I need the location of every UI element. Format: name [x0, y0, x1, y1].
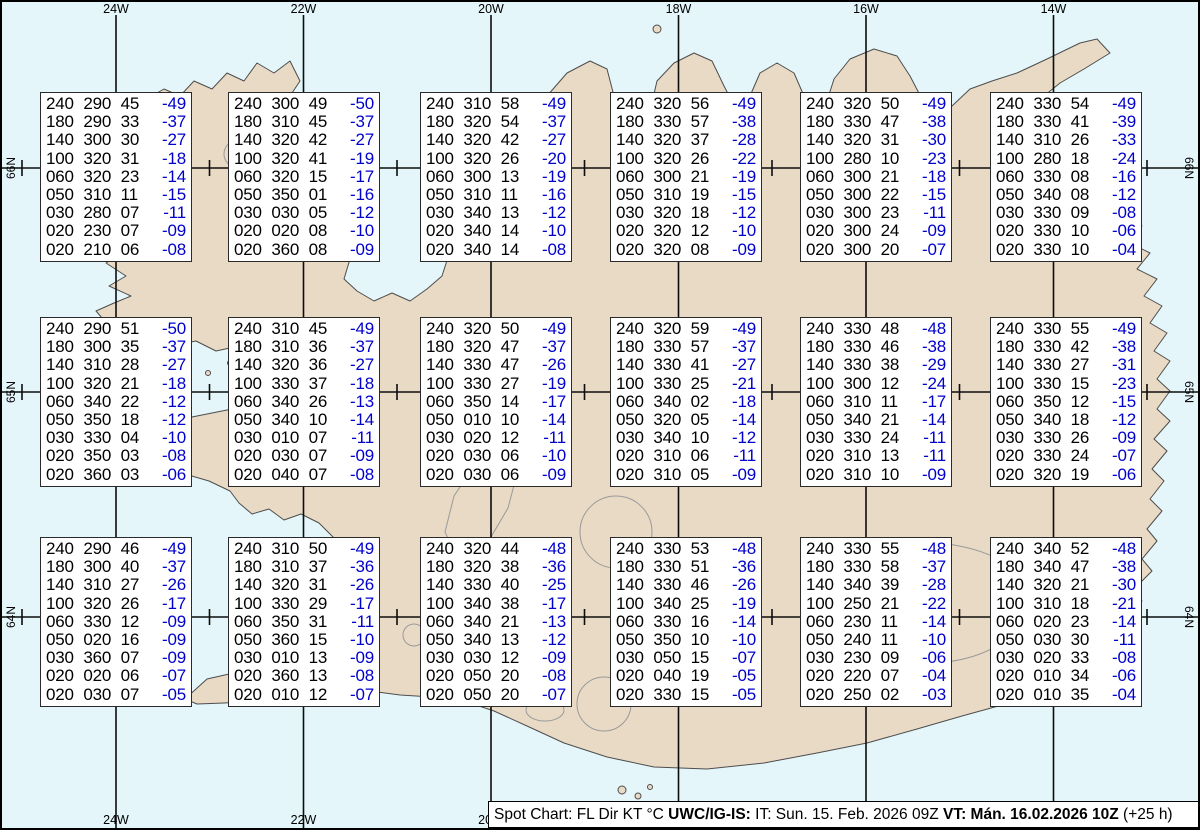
dir-value: 240 — [843, 631, 877, 649]
meridian-label-top: 14W — [1041, 3, 1067, 16]
dir-value: 300 — [83, 131, 117, 149]
legend-forecast-offset: (+25 h) — [1119, 806, 1173, 824]
dir-value: 320 — [271, 576, 305, 594]
kt-value: 20 — [501, 667, 527, 685]
dir-value: 340 — [463, 204, 497, 222]
fl-value: 060 — [46, 613, 80, 631]
kt-value: 11 — [501, 186, 527, 204]
fl-value: 020 — [426, 447, 460, 465]
temp-value: -49 — [338, 540, 374, 558]
fl-value: 060 — [616, 613, 650, 631]
kt-value: 27 — [121, 576, 147, 594]
spot-row: 24031045-49 — [234, 320, 374, 338]
dir-value: 320 — [843, 95, 877, 113]
fl-value: 180 — [996, 113, 1030, 131]
spot-row: 03033009-08 — [996, 204, 1136, 222]
spot-row: 05036015-10 — [234, 631, 374, 649]
kt-value: 26 — [121, 595, 147, 613]
spot-row: 18031037-36 — [234, 558, 374, 576]
spot-row: 24033048-48 — [806, 320, 946, 338]
fl-value: 060 — [996, 393, 1030, 411]
temp-value: -09 — [150, 631, 186, 649]
fl-value: 030 — [426, 204, 460, 222]
temp-value: -03 — [910, 686, 946, 704]
spot-row: 06034021-13 — [426, 613, 566, 631]
spot-row: 02021006-08 — [46, 241, 186, 259]
fl-value: 100 — [996, 375, 1030, 393]
spot-box-r1c1: 24029045-4918029033-3714030030-271003203… — [40, 92, 192, 262]
spot-row: 02003006-10 — [426, 447, 566, 465]
spot-row: 06034026-13 — [234, 393, 374, 411]
spot-row: 02003006-09 — [426, 466, 566, 484]
fl-value: 050 — [426, 411, 460, 429]
fl-value: 060 — [616, 393, 650, 411]
temp-value: -12 — [1100, 411, 1136, 429]
dir-value: 310 — [271, 558, 305, 576]
dir-value: 340 — [653, 429, 687, 447]
legend-bar: Spot Chart: FL Dir KT °C UWC/IG-IS: IT: … — [488, 801, 1198, 828]
fl-value: 060 — [46, 393, 80, 411]
fl-value: 020 — [806, 241, 840, 259]
fl-value: 030 — [426, 649, 460, 667]
kt-value: 26 — [1071, 429, 1097, 447]
kt-value: 24 — [1071, 447, 1097, 465]
temp-value: -12 — [530, 204, 566, 222]
dir-value: 340 — [1033, 540, 1067, 558]
fl-value: 030 — [426, 429, 460, 447]
spot-row: 03028007-11 — [46, 204, 186, 222]
dir-value: 320 — [83, 375, 117, 393]
kt-value: 47 — [501, 338, 527, 356]
fl-value: 020 — [806, 447, 840, 465]
temp-value: -10 — [530, 447, 566, 465]
spot-row: 18032047-37 — [426, 338, 566, 356]
fl-value: 180 — [996, 558, 1030, 576]
spot-row: 18033047-38 — [806, 113, 946, 131]
spot-row: 05034010-14 — [234, 411, 374, 429]
dir-value: 320 — [271, 168, 305, 186]
kt-value: 18 — [1071, 150, 1097, 168]
temp-value: -04 — [1100, 686, 1136, 704]
dir-value: 340 — [463, 613, 497, 631]
spot-row: 02002006-07 — [46, 667, 186, 685]
spot-row: 18029033-37 — [46, 113, 186, 131]
fl-value: 140 — [46, 131, 80, 149]
dir-value: 360 — [271, 241, 305, 259]
temp-value: -49 — [720, 320, 756, 338]
kt-value: 12 — [691, 222, 717, 240]
dir-value: 340 — [653, 595, 687, 613]
temp-value: -25 — [530, 576, 566, 594]
spot-row: 10032026-17 — [46, 595, 186, 613]
temp-value: -07 — [910, 241, 946, 259]
fl-value: 140 — [234, 356, 268, 374]
temp-value: -12 — [150, 411, 186, 429]
fl-value: 180 — [616, 338, 650, 356]
temp-value: -49 — [1100, 95, 1136, 113]
dir-value: 360 — [271, 667, 305, 685]
fl-value: 240 — [234, 540, 268, 558]
kt-value: 51 — [691, 558, 717, 576]
spot-row: 24034052-48 — [996, 540, 1136, 558]
fl-value: 050 — [234, 186, 268, 204]
kt-value: 24 — [881, 429, 907, 447]
kt-value: 38 — [501, 595, 527, 613]
dir-value: 330 — [83, 429, 117, 447]
fl-value: 140 — [46, 576, 80, 594]
temp-value: -16 — [1100, 168, 1136, 186]
fl-value: 020 — [616, 466, 650, 484]
dir-value: 320 — [653, 320, 687, 338]
fl-value: 030 — [46, 429, 80, 447]
kt-value: 07 — [121, 204, 147, 222]
kt-value: 09 — [881, 649, 907, 667]
temp-value: -09 — [150, 613, 186, 631]
fl-value: 020 — [46, 222, 80, 240]
spot-row: 02030024-09 — [806, 222, 946, 240]
temp-value: -49 — [530, 320, 566, 338]
fl-value: 140 — [46, 356, 80, 374]
fl-value: 240 — [234, 320, 268, 338]
dir-value: 290 — [83, 320, 117, 338]
temp-value: -15 — [1100, 393, 1136, 411]
fl-value: 240 — [996, 95, 1030, 113]
fl-value: 050 — [46, 411, 80, 429]
spot-row: 06032015-17 — [234, 168, 374, 186]
dir-value: 330 — [463, 356, 497, 374]
kt-value: 04 — [121, 429, 147, 447]
temp-value: -15 — [150, 186, 186, 204]
dir-value: 340 — [463, 631, 497, 649]
dir-value: 310 — [1033, 131, 1067, 149]
spot-box-r3c2: 24031050-4918031037-3614032031-261003302… — [228, 537, 380, 707]
temp-value: -27 — [150, 356, 186, 374]
spot-row: 06030013-19 — [426, 168, 566, 186]
dir-value: 030 — [463, 447, 497, 465]
temp-value: -49 — [150, 540, 186, 558]
legend-valid-time: VT: Mán. 16.02.2026 10Z — [943, 806, 1119, 824]
dir-value: 310 — [843, 447, 877, 465]
meridian-label-top: 24W — [103, 3, 129, 16]
temp-value: -19 — [720, 168, 756, 186]
spot-row: 06033012-09 — [46, 613, 186, 631]
fl-value: 100 — [616, 375, 650, 393]
dir-value: 330 — [653, 375, 687, 393]
dir-value: 230 — [843, 649, 877, 667]
temp-value: -06 — [1100, 466, 1136, 484]
dir-value: 340 — [271, 411, 305, 429]
temp-value: -37 — [150, 558, 186, 576]
dir-value: 310 — [653, 466, 687, 484]
dir-value: 010 — [463, 411, 497, 429]
fl-value: 030 — [806, 204, 840, 222]
fl-value: 030 — [806, 649, 840, 667]
kt-value: 48 — [881, 320, 907, 338]
fl-value: 180 — [806, 558, 840, 576]
temp-value: -31 — [1100, 356, 1136, 374]
kt-value: 21 — [691, 168, 717, 186]
kt-value: 47 — [501, 356, 527, 374]
dir-value: 330 — [1033, 222, 1067, 240]
spot-row: 14033027-31 — [996, 356, 1136, 374]
kt-value: 50 — [881, 95, 907, 113]
spot-row: 14031026-33 — [996, 131, 1136, 149]
temp-value: -10 — [910, 631, 946, 649]
spot-row: 03036007-09 — [46, 649, 186, 667]
dir-value: 330 — [843, 429, 877, 447]
spot-row: 02032012-10 — [616, 222, 756, 240]
fl-value: 050 — [46, 186, 80, 204]
dir-value: 330 — [463, 375, 497, 393]
fl-value: 060 — [996, 613, 1030, 631]
temp-value: -21 — [1100, 595, 1136, 613]
spot-row: 18033041-39 — [996, 113, 1136, 131]
kt-value: 23 — [121, 168, 147, 186]
dir-value: 310 — [653, 447, 687, 465]
temp-value: -36 — [338, 558, 374, 576]
spot-row: 14030030-27 — [46, 131, 186, 149]
spot-row: 14032031-30 — [806, 131, 946, 149]
dir-value: 320 — [653, 95, 687, 113]
fl-value: 050 — [996, 186, 1030, 204]
temp-value: -17 — [338, 168, 374, 186]
dir-value: 320 — [653, 204, 687, 222]
dir-value: 020 — [1033, 649, 1067, 667]
spot-row: 05003030-11 — [996, 631, 1136, 649]
kt-value: 27 — [1071, 356, 1097, 374]
dir-value: 320 — [653, 241, 687, 259]
dir-value: 220 — [843, 667, 877, 685]
kt-value: 20 — [881, 241, 907, 259]
fl-value: 180 — [234, 558, 268, 576]
kt-value: 41 — [1071, 113, 1097, 131]
dir-value: 030 — [463, 466, 497, 484]
temp-value: -08 — [1100, 649, 1136, 667]
kt-value: 18 — [691, 204, 717, 222]
dir-value: 310 — [271, 320, 305, 338]
fl-value: 140 — [996, 131, 1030, 149]
fl-value: 020 — [46, 241, 80, 259]
fl-value: 180 — [46, 558, 80, 576]
dir-value: 330 — [843, 558, 877, 576]
fl-value: 140 — [806, 576, 840, 594]
kt-value: 21 — [1071, 576, 1097, 594]
kt-value: 39 — [881, 576, 907, 594]
dir-value: 050 — [463, 686, 497, 704]
temp-value: -10 — [338, 631, 374, 649]
dir-value: 330 — [1033, 356, 1067, 374]
kt-value: 18 — [121, 411, 147, 429]
spot-row: 02034014-08 — [426, 241, 566, 259]
fl-value: 060 — [234, 168, 268, 186]
spot-row: 05030022-15 — [806, 186, 946, 204]
kt-value: 38 — [501, 558, 527, 576]
spot-row: 10030012-24 — [806, 375, 946, 393]
kt-value: 08 — [1071, 186, 1097, 204]
dir-value: 310 — [271, 113, 305, 131]
temp-value: -28 — [910, 576, 946, 594]
dir-value: 300 — [843, 204, 877, 222]
spot-box-r3c4: 24033053-4818033051-3614033046-261003402… — [610, 537, 762, 707]
temp-value: -10 — [720, 222, 756, 240]
kt-value: 12 — [501, 649, 527, 667]
dir-value: 360 — [83, 649, 117, 667]
dir-value: 330 — [1033, 447, 1067, 465]
fl-value: 020 — [426, 241, 460, 259]
spot-box-r1c3: 24031058-4918032054-3714032042-271003202… — [420, 92, 572, 262]
dir-value: 320 — [653, 150, 687, 168]
dir-value: 330 — [653, 113, 687, 131]
dir-value: 330 — [1033, 338, 1067, 356]
temp-value: -06 — [150, 466, 186, 484]
dir-value: 330 — [653, 558, 687, 576]
kt-value: 42 — [309, 131, 335, 149]
fl-value: 180 — [996, 338, 1030, 356]
dir-value: 040 — [271, 466, 305, 484]
temp-value: -11 — [150, 204, 186, 222]
spot-row: 10031018-21 — [996, 595, 1136, 613]
spot-row: 02004007-08 — [234, 466, 374, 484]
kt-value: 08 — [309, 222, 335, 240]
temp-value: -17 — [910, 393, 946, 411]
kt-value: 12 — [501, 429, 527, 447]
spot-row: 03030023-11 — [806, 204, 946, 222]
dir-value: 330 — [463, 576, 497, 594]
temp-value: -26 — [530, 356, 566, 374]
dir-value: 300 — [843, 222, 877, 240]
kt-value: 37 — [309, 375, 335, 393]
temp-value: -11 — [530, 429, 566, 447]
fl-value: 020 — [996, 667, 1030, 685]
dir-value: 340 — [843, 576, 877, 594]
spot-row: 02032019-06 — [996, 466, 1136, 484]
spot-row: 03033004-10 — [46, 429, 186, 447]
temp-value: -37 — [530, 113, 566, 131]
kt-value: 28 — [121, 356, 147, 374]
parallel-label-left: 66N — [4, 153, 18, 183]
fl-value: 020 — [806, 466, 840, 484]
dir-value: 010 — [271, 429, 305, 447]
dir-value: 310 — [271, 540, 305, 558]
kt-value: 12 — [1071, 393, 1097, 411]
dir-value: 350 — [271, 186, 305, 204]
spot-row: 03001013-09 — [234, 649, 374, 667]
spot-row: 06034022-12 — [46, 393, 186, 411]
temp-value: -27 — [338, 131, 374, 149]
temp-value: -06 — [1100, 667, 1136, 685]
fl-value: 100 — [234, 375, 268, 393]
dir-value: 030 — [463, 649, 497, 667]
fl-value: 100 — [46, 595, 80, 613]
kt-value: 13 — [881, 447, 907, 465]
dir-value: 340 — [1033, 558, 1067, 576]
kt-value: 14 — [501, 222, 527, 240]
temp-value: -38 — [910, 113, 946, 131]
dir-value: 330 — [1033, 375, 1067, 393]
spot-row: 10032026-20 — [426, 150, 566, 168]
kt-value: 08 — [691, 241, 717, 259]
spot-box-r3c5: 24033055-4818033058-3714034039-281002502… — [800, 537, 952, 707]
temp-value: -14 — [150, 168, 186, 186]
temp-value: -15 — [720, 186, 756, 204]
spot-row: 18031036-37 — [234, 338, 374, 356]
fl-value: 100 — [806, 595, 840, 613]
fl-value: 240 — [806, 540, 840, 558]
kt-value: 33 — [121, 113, 147, 131]
spot-row: 18030035-37 — [46, 338, 186, 356]
spot-row: 05034013-12 — [426, 631, 566, 649]
temp-value: -24 — [910, 375, 946, 393]
dir-value: 320 — [653, 131, 687, 149]
spot-row: 18031045-37 — [234, 113, 374, 131]
dir-value: 280 — [843, 150, 877, 168]
kt-value: 07 — [881, 667, 907, 685]
temp-value: -39 — [1100, 113, 1136, 131]
kt-value: 19 — [691, 667, 717, 685]
kt-value: 54 — [1071, 95, 1097, 113]
dir-value: 300 — [653, 168, 687, 186]
spot-row: 10033029-17 — [234, 595, 374, 613]
dir-value: 350 — [271, 613, 305, 631]
kt-value: 21 — [881, 411, 907, 429]
fl-value: 100 — [996, 150, 1030, 168]
fl-value: 060 — [806, 613, 840, 631]
kt-value: 29 — [309, 595, 335, 613]
spot-box-r2c1: 24029051-5018030035-3714031028-271003202… — [40, 317, 192, 487]
temp-value: -37 — [720, 338, 756, 356]
fl-value: 050 — [616, 411, 650, 429]
spot-row: 02001012-07 — [234, 686, 374, 704]
dir-value: 330 — [653, 576, 687, 594]
parallel-label-right: 64N — [1182, 602, 1196, 632]
dir-value: 330 — [843, 320, 877, 338]
spot-row: 24031050-49 — [234, 540, 374, 558]
fl-value: 100 — [996, 595, 1030, 613]
spot-row: 05032005-14 — [616, 411, 756, 429]
spot-row: 03002033-08 — [996, 649, 1136, 667]
spot-row: 05035010-10 — [616, 631, 756, 649]
fl-value: 180 — [426, 338, 460, 356]
kt-value: 25 — [691, 595, 717, 613]
spot-row: 14032021-30 — [996, 576, 1136, 594]
spot-row: 10032021-18 — [46, 375, 186, 393]
temp-value: -19 — [338, 150, 374, 168]
dir-value: 020 — [1033, 613, 1067, 631]
temp-value: -10 — [338, 222, 374, 240]
kt-value: 22 — [881, 186, 907, 204]
kt-value: 41 — [691, 356, 717, 374]
kt-value: 18 — [1071, 411, 1097, 429]
kt-value: 07 — [309, 447, 335, 465]
dir-value: 320 — [463, 150, 497, 168]
kt-value: 11 — [881, 613, 907, 631]
fl-value: 020 — [46, 466, 80, 484]
kt-value: 10 — [1071, 241, 1097, 259]
spot-row: 14032037-28 — [616, 131, 756, 149]
temp-value: -11 — [720, 447, 756, 465]
fl-value: 100 — [616, 150, 650, 168]
fl-value: 020 — [806, 222, 840, 240]
spot-row: 06002023-14 — [996, 613, 1136, 631]
parallel-label-right: 65N — [1182, 377, 1196, 407]
dir-value: 290 — [83, 113, 117, 131]
fl-value: 020 — [616, 667, 650, 685]
dir-value: 350 — [83, 447, 117, 465]
spot-row: 14032042-27 — [234, 131, 374, 149]
dir-value: 330 — [843, 113, 877, 131]
kt-value: 40 — [501, 576, 527, 594]
dir-value: 210 — [83, 241, 117, 259]
